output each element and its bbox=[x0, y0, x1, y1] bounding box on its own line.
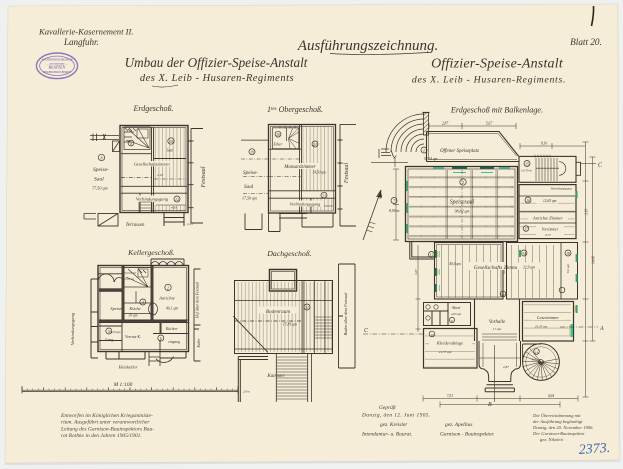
svg-text:Erker: Erker bbox=[273, 143, 283, 147]
svg-text:HOCHSCHULE BERLIN: HOCHSCHULE BERLIN bbox=[42, 71, 71, 74]
svg-text:9: 9 bbox=[130, 142, 132, 146]
svg-text:Festsaal: Festsaal bbox=[200, 166, 207, 188]
svg-text:Dachgeschoß.: Dachgeschoß. bbox=[266, 249, 311, 258]
svg-text:Vorrats-K.: Vorrats-K. bbox=[125, 335, 141, 339]
svg-text:Gesellschaftszimmer: Gesellschaftszimmer bbox=[134, 162, 171, 167]
svg-text:15: 15 bbox=[525, 163, 529, 167]
svg-text:18: 18 bbox=[566, 252, 570, 256]
svg-text:30 qm: 30 qm bbox=[129, 314, 138, 318]
svg-text:17 qm: 17 qm bbox=[493, 327, 502, 331]
svg-text:14: 14 bbox=[535, 351, 539, 355]
svg-text:der Ausführung beglaubigt: der Ausführung beglaubigt bbox=[533, 419, 583, 424]
svg-text:des X. Leib - Husaren-Regim: des X. Leib - Husaren-Regiments bbox=[140, 73, 294, 84]
svg-text:Verbindungsgang: Verbindungsgang bbox=[290, 202, 322, 207]
svg-text:Entworfen im Königlichen Krieg: Entworfen im Königlichen Kriegsministe- bbox=[60, 412, 153, 419]
svg-text:gez. Kreisler: gez. Kreisler bbox=[380, 422, 408, 428]
svg-text:16: 16 bbox=[526, 199, 530, 203]
svg-text:Blatt 20.: Blatt 20. bbox=[570, 37, 602, 47]
svg-text:Abort: Abort bbox=[451, 306, 462, 310]
svg-text:11: 11 bbox=[450, 319, 453, 323]
svg-text:A: A bbox=[599, 326, 604, 332]
svg-text:Speise: Speise bbox=[110, 306, 121, 311]
svg-text:Ausführungszeichnung.: Ausführungszeichnung. bbox=[297, 38, 438, 54]
svg-text:Danzig, den 12. Juni 1905.: Danzig, den 12. Juni 1905. bbox=[361, 413, 431, 419]
svg-text:Verbindungsgang: Verbindungsgang bbox=[70, 312, 75, 345]
svg-text:ARCHITEKTUR-MUSEUM: ARCHITEKTUR-MUSEUM bbox=[41, 59, 74, 62]
svg-text:6: 6 bbox=[160, 337, 162, 341]
svg-text:Vorhalle: Vorhalle bbox=[489, 320, 506, 325]
svg-text:gez. Apellius: gez. Apellius bbox=[445, 422, 472, 428]
svg-text:Vorzimmer: Vorzimmer bbox=[542, 228, 559, 232]
svg-text:Saal: Saal bbox=[94, 177, 104, 183]
svg-text:Speise-: Speise- bbox=[93, 167, 109, 173]
svg-text:8: 8 bbox=[101, 156, 103, 161]
svg-text:Saal: Saal bbox=[244, 184, 254, 190]
svg-text:4: 4 bbox=[142, 301, 144, 305]
svg-text:Mansardzimmer: Mansardzimmer bbox=[283, 165, 315, 170]
svg-text:Die Übereinstimmung mit: Die Übereinstimmung mit bbox=[532, 413, 581, 418]
svg-text:Heizkeller: Heizkeller bbox=[118, 365, 138, 370]
svg-text:Boden über dem Festsaal: Boden über dem Festsaal bbox=[343, 292, 348, 336]
svg-text:1: 1 bbox=[423, 149, 425, 153]
svg-text:Leitung des Garnison-Bauinspek: Leitung des Garnison-Bauinspektors Bau- bbox=[60, 426, 154, 432]
svg-text:Verbindungsgang: Verbindungsgang bbox=[551, 187, 573, 191]
svg-text:Umbau der Offizier-Speise-Anst: Umbau der Offizier-Speise-Anstalt bbox=[125, 55, 308, 70]
svg-text:19: 19 bbox=[250, 151, 254, 155]
svg-text:Der Garnison-Bauinspektor: Der Garnison-Bauinspektor bbox=[532, 431, 585, 436]
svg-text:2: 2 bbox=[167, 285, 169, 290]
svg-text:BLATTEN: BLATTEN bbox=[48, 65, 66, 69]
svg-text:Gang: Gang bbox=[105, 338, 114, 342]
svg-text:Hof über dem Festsaal: Hof über dem Festsaal bbox=[195, 281, 200, 319]
svg-text:Garnison - Bauinspektor.: Garnison - Bauinspektor. bbox=[440, 432, 495, 438]
svg-text:Verbindungsgang: Verbindungsgang bbox=[136, 197, 169, 202]
svg-text:14: 14 bbox=[522, 252, 526, 256]
svg-text:17: 17 bbox=[524, 228, 528, 232]
svg-text:31: 31 bbox=[305, 306, 309, 310]
svg-text:Offizier-Speise-Anstalt: Offizier-Speise-Anstalt bbox=[431, 57, 564, 72]
svg-text:Bodenraum: Bodenraum bbox=[266, 309, 290, 315]
svg-text:Offener Speiseplatz: Offener Speiseplatz bbox=[440, 149, 479, 154]
svg-text:Saal: Saal bbox=[167, 149, 173, 153]
svg-text:23: 23 bbox=[322, 194, 326, 198]
svg-text:Festsaal: Festsaal bbox=[344, 163, 350, 185]
svg-text:2: 2 bbox=[462, 180, 464, 185]
svg-text:13: 13 bbox=[430, 254, 434, 258]
svg-text:2373.: 2373. bbox=[578, 441, 610, 458]
svg-text:Küchen-: Küchen- bbox=[165, 327, 179, 331]
svg-text:B: B bbox=[488, 402, 492, 408]
svg-text:rium. Ausgeführt unter verant: rium. Ausgeführt unter verantwortlicher bbox=[61, 419, 150, 426]
svg-text:Kammer: Kammer bbox=[266, 374, 284, 379]
svg-text:Erdgeschoß mit Balkenlage.: Erdgeschoß mit Balkenlage. bbox=[450, 106, 543, 115]
svg-text:10: 10 bbox=[169, 139, 173, 144]
svg-text:Kleiderablage: Kleiderablage bbox=[436, 341, 463, 346]
svg-text:Anrichte Zimmer: Anrichte Zimmer bbox=[532, 216, 563, 221]
svg-text:Erdgeschoß.: Erdgeschoß. bbox=[133, 104, 174, 113]
svg-text:Keller: Keller bbox=[197, 338, 201, 349]
svg-text:12: 12 bbox=[501, 293, 505, 297]
svg-text:M 1:100: M 1:100 bbox=[113, 382, 133, 388]
svg-text:Geprüft: Geprüft bbox=[379, 404, 396, 411]
svg-text:Küche: Küche bbox=[128, 306, 140, 311]
svg-text:Kavallerie-Kasernement II.: Kavallerie-Kasernement II. bbox=[38, 27, 134, 37]
svg-text:eingang: eingang bbox=[168, 340, 180, 344]
svg-text:des X. Leib - Husaren-Regim: des X. Leib - Husaren-Regiments. bbox=[412, 75, 566, 86]
svg-text:20 m: 20 m bbox=[243, 390, 250, 394]
svg-text:Anrichte: Anrichte bbox=[158, 296, 175, 301]
svg-text:Speise-: Speise- bbox=[243, 170, 258, 176]
svg-text:Kellergeschoß.: Kellergeschoß. bbox=[127, 248, 175, 257]
svg-text:10: 10 bbox=[430, 333, 434, 337]
svg-text:rat Rothke in den Jahren 1905/: rat Rothke in den Jahren 1905/1901. bbox=[61, 433, 142, 439]
svg-text:Intendantur- u. Baurat.: Intendantur- u. Baurat. bbox=[361, 432, 412, 438]
svg-text:Terrassen: Terrassen bbox=[126, 223, 145, 228]
svg-text:Lesezimmer: Lesezimmer bbox=[536, 315, 559, 320]
svg-text:21: 21 bbox=[313, 143, 317, 147]
svg-text:20: 20 bbox=[276, 133, 280, 137]
svg-text:12: 12 bbox=[175, 197, 179, 202]
svg-text:Langfuhr.: Langfuhr. bbox=[63, 37, 99, 47]
svg-text:gez. Nikoleit: gez. Nikoleit bbox=[540, 437, 564, 442]
